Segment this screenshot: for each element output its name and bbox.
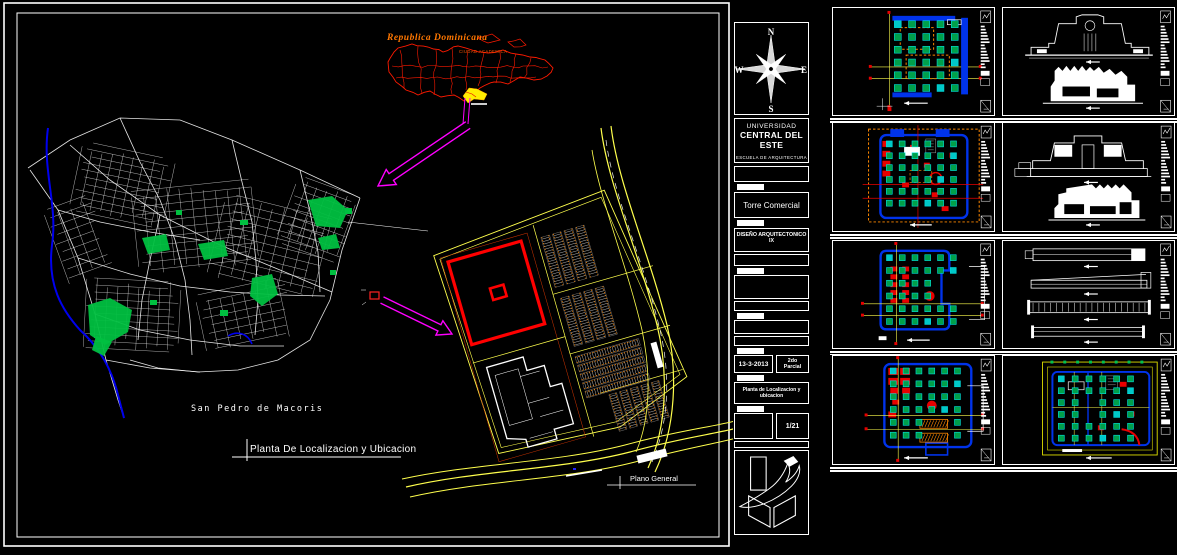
sheet-caption: Planta De Localizacion y Ubicacion: [250, 444, 416, 455]
field-label-stub: [737, 268, 764, 274]
highlighted-province: [463, 88, 487, 103]
row-separator: [830, 467, 1177, 469]
empty-field-box: [734, 441, 809, 448]
map-sublabel: CIUDAD ACADEMICA: [459, 49, 507, 54]
sheet-inner-border: [17, 13, 719, 537]
locator-arrow-country-to-city: [378, 122, 470, 186]
logo-box: [734, 450, 809, 535]
date-value: 13-3-2013: [739, 361, 769, 368]
sheet-thumbnail-structural-plan: [832, 7, 995, 116]
field-label-stub: [737, 406, 764, 412]
row-separator: [830, 234, 1177, 236]
sheet-thumbnail-front-elevations: [1002, 7, 1175, 116]
empty-field-box: [734, 320, 809, 334]
field-label-stub: [737, 375, 764, 381]
empty-field-box: [734, 301, 809, 311]
title-block: N S W E UNIVERSIDAD CENTRAL DEL ESTE ESC…: [734, 18, 811, 538]
svg-text:W: W: [735, 65, 744, 75]
map-title-label: Republica Dominicana: [386, 33, 488, 43]
empty-field-box: [734, 166, 809, 182]
sheet-outer-border: [4, 3, 729, 546]
annex-building: [487, 349, 577, 452]
location-sheet-drawing: Republica Dominicana CIUDAD ACADEMICA: [0, 0, 733, 555]
empty-field-box: [734, 254, 809, 266]
university-name-line1: UNIVERSIDAD: [735, 123, 808, 130]
project-name: Torre Comercial: [743, 201, 799, 210]
sheet-thumbnail-upper-floor-plan: [832, 240, 995, 349]
term-line2: Parcial: [784, 364, 801, 370]
field-label-stub: [737, 220, 764, 226]
sheet-number-box: 1/21: [776, 413, 809, 439]
row-separator: [830, 354, 1177, 356]
project-box: Torre Comercial: [734, 192, 809, 218]
school-name: ESCUELA DE ARQUITECTURA: [735, 155, 808, 160]
row-separator: [830, 237, 1177, 239]
course-level: IX: [735, 238, 808, 244]
sheet-thumbnail-side-elevations: [1002, 122, 1175, 232]
sheet-number: 1/21: [786, 423, 800, 430]
term-box: 2do Parcial: [776, 355, 809, 373]
sheet-thumbnail-typical-floor-plan: [832, 355, 995, 465]
sheet-thumbnail-furnished-floor-plan: [832, 122, 995, 232]
san-pedro-city-map: [28, 118, 362, 418]
site-plan: [429, 182, 696, 467]
sheet-thumbnail-roof-plan: [1002, 355, 1175, 465]
empty-field-box: [734, 413, 773, 439]
city-name-label: San Pedro de Macoris: [191, 404, 323, 414]
university-box: UNIVERSIDAD CENTRAL DEL ESTE ESCUELA DE …: [734, 118, 809, 163]
field-label-stub: [737, 184, 764, 190]
university-logo-icon: [735, 451, 808, 534]
svg-text:E: E: [801, 65, 807, 75]
row-separator: [830, 118, 1177, 120]
north-arrow-box: N S W E: [734, 22, 809, 115]
cad-paperspace: Republica Dominicana CIUDAD ACADEMICA: [0, 0, 1177, 555]
row-separator: [830, 470, 1177, 472]
empty-field-box: [734, 275, 809, 299]
field-label-stub: [737, 313, 764, 319]
course-box: DISEÑO ARQUITECTONICO IX: [734, 228, 809, 252]
date-box: 13-3-2013: [734, 355, 773, 373]
row-separator: [830, 121, 1177, 123]
river: [47, 128, 124, 418]
empty-field-box: [734, 336, 809, 346]
site-plan-label: Plano General: [630, 474, 678, 483]
field-label-stub: [737, 348, 764, 354]
university-name-line2: CENTRAL DEL ESTE: [735, 130, 808, 150]
drawing-title-box: Planta de Localizacion y ubicacion: [734, 382, 809, 404]
compass-rose-icon: N S W E: [735, 23, 808, 114]
tower-core: [490, 285, 507, 300]
row-separator: [830, 351, 1177, 353]
svg-text:S: S: [768, 104, 773, 114]
sheet-thumbnail-building-sections: [1002, 240, 1175, 349]
drawing-title-line2: ubicacion: [735, 393, 808, 399]
svg-text:N: N: [768, 27, 775, 37]
site-marker: [370, 292, 379, 299]
locator-arrow-city-to-site: [381, 297, 453, 335]
